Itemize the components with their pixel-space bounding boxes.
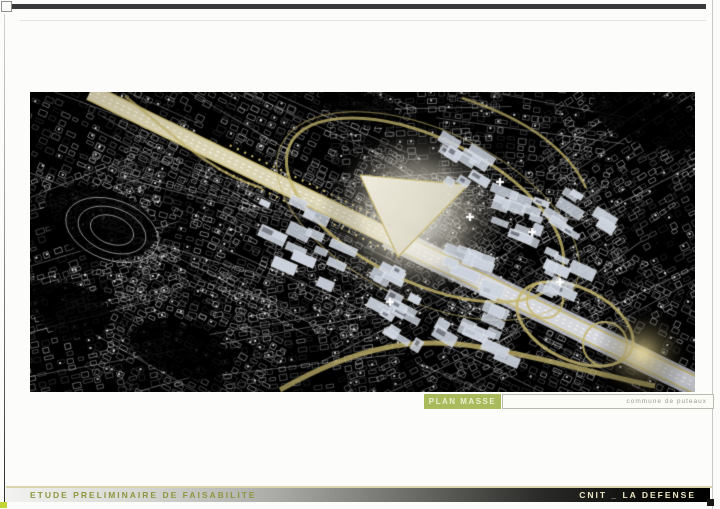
presentation-sheet: PLAN MASSE commune de puteaux ETUDE PREL…	[0, 0, 720, 509]
trim-corner-square	[1, 1, 12, 12]
study-title: ETUDE PRELIMINAIRE DE FAISABILITE	[30, 490, 257, 500]
left-fold-line	[4, 14, 5, 503]
right-fold-line	[712, 0, 713, 509]
plan-masse-map	[30, 92, 695, 392]
plan-masse-badge: PLAN MASSE	[424, 394, 501, 409]
corner-tick-dark	[707, 499, 714, 506]
inner-frame-line	[20, 20, 706, 21]
commune-label: commune de puteaux	[502, 394, 714, 409]
corner-chip-yellow	[0, 502, 7, 508]
project-title: CNIT _ LA DEFENSE	[579, 490, 696, 500]
map-frame	[30, 92, 695, 392]
top-rule	[12, 4, 706, 9]
footer-bar: ETUDE PRELIMINAIRE DE FAISABILITE CNIT _…	[6, 488, 710, 502]
